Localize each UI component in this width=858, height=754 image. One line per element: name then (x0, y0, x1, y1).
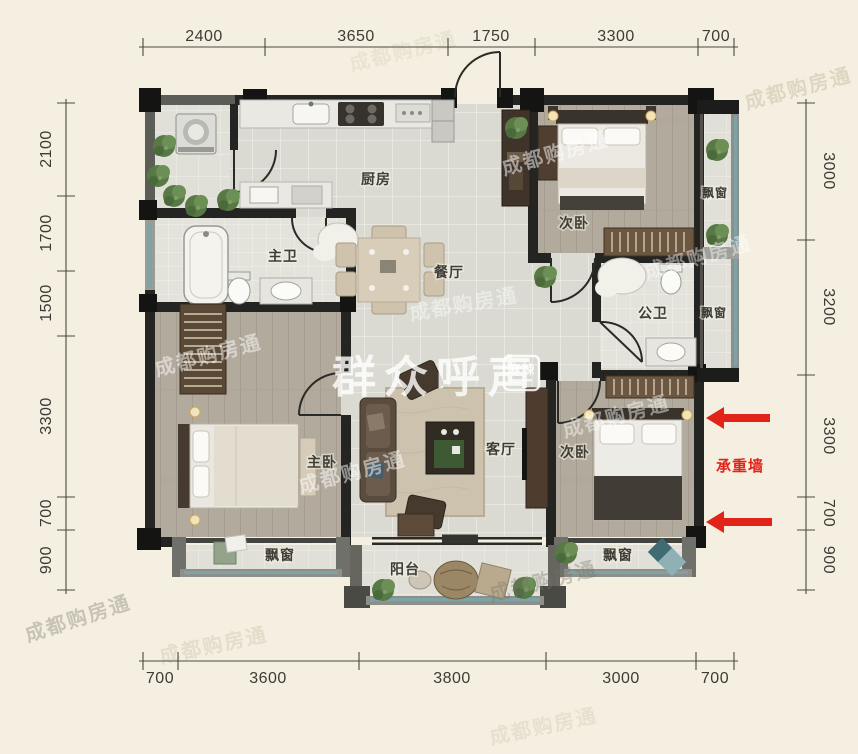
dim-bottom-0: 700 (146, 670, 174, 687)
dim-left-5: 900 (38, 546, 55, 574)
label-bay-window-right-mid: 飘窗 (701, 305, 727, 320)
label-balcony: 阳台 (390, 561, 420, 577)
dim-right-2: 3300 (820, 417, 837, 455)
dim-top-1: 3650 (337, 28, 375, 45)
dim-right-4: 900 (820, 546, 837, 574)
label-dining: 餐厅 (433, 264, 464, 280)
label-bay-window-right-top: 飘窗 (702, 185, 728, 200)
label-kitchen: 厨房 (361, 171, 391, 187)
dim-bottom-2: 3800 (433, 670, 471, 687)
label-bay-window-br: 飘窗 (603, 547, 633, 563)
dim-bottom-1: 3600 (249, 670, 287, 687)
dim-left-3: 3300 (38, 397, 55, 435)
dim-right-1: 3200 (820, 288, 837, 326)
dim-top-0: 2400 (185, 28, 223, 45)
label-bedroom-top: 次卧 (559, 215, 589, 231)
dim-left-4: 700 (38, 499, 55, 527)
dim-top-4: 700 (702, 28, 730, 45)
dim-left-0: 2100 (38, 130, 55, 168)
label-bedroom-bottom: 次卧 (560, 444, 590, 460)
label-bay-window-bl: 飘窗 (265, 547, 295, 563)
dim-bottom-3: 3000 (602, 670, 640, 687)
label-public-bath: 公卫 (638, 305, 668, 321)
dim-top-3: 3300 (597, 28, 635, 45)
label-master-bath: 主卫 (268, 248, 298, 264)
watermark-brand-large: 群众呼声 (332, 353, 540, 402)
dim-right-3: 700 (820, 499, 837, 527)
dim-bottom-4: 700 (701, 670, 729, 687)
dim-top-2: 1750 (472, 28, 510, 45)
floor-plan-canvas: 成都购房通 成都购房通 成都购房通 成都购房通 成都购房通 成都购房通 成都购房… (0, 0, 858, 754)
load-bearing-wall-label: 承重墙 (716, 457, 764, 475)
label-master-bedroom: 主卧 (307, 454, 337, 470)
dim-left-2: 1500 (38, 284, 55, 322)
dim-left-1: 1700 (38, 214, 55, 252)
label-living: 客厅 (485, 441, 516, 457)
dim-right-0: 3000 (820, 152, 837, 190)
watermark-logo-text: 麻辣 (506, 362, 535, 377)
